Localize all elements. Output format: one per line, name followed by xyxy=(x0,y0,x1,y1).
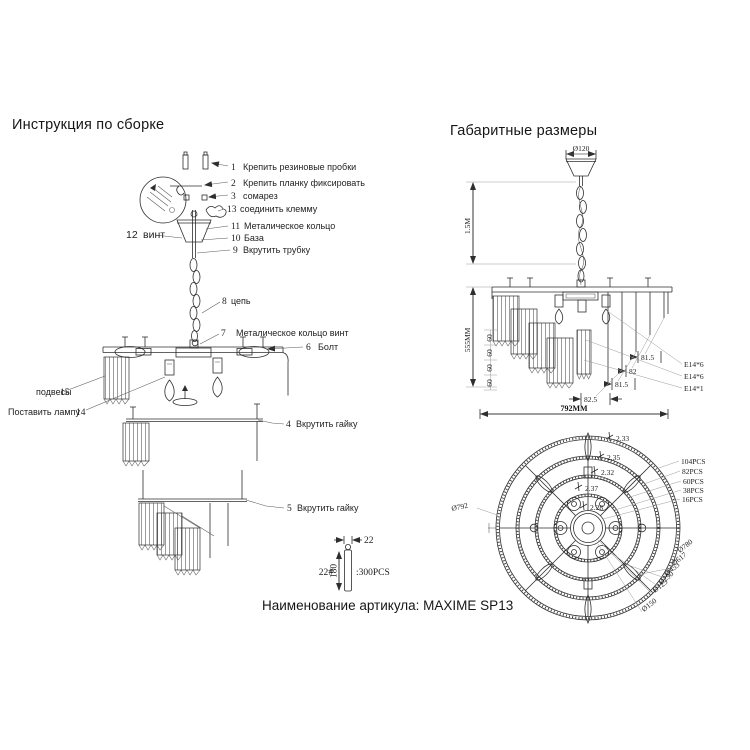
hanging-ring-icon xyxy=(192,340,198,346)
callout-label: Вкрутить гайку xyxy=(296,419,358,429)
lamp-icon xyxy=(165,360,174,401)
tier3-frame-icon xyxy=(138,470,247,575)
gap-label: 2.37 xyxy=(585,484,598,493)
chain-icon xyxy=(577,186,587,285)
fixture-width-label: 792MM xyxy=(560,404,588,413)
spacing-label: 60 xyxy=(485,379,494,387)
pcs-label: 38PCS xyxy=(683,486,704,495)
callout-label: Металическое кольцо винт xyxy=(236,328,349,338)
terminal-icon xyxy=(206,206,226,218)
side-view: Ø120 1.5M xyxy=(463,144,704,419)
drop-dim-label: 82.5 xyxy=(584,395,597,404)
lamp-icon xyxy=(602,295,610,324)
callout-label: Вкрутить гайку xyxy=(297,503,359,513)
screws-icon xyxy=(184,195,207,200)
assembly-diagram: 22 180 22# :300PCS 1 Крепить резиновые п… xyxy=(8,152,390,591)
callout-label: База xyxy=(244,233,264,243)
callout-label: цепь xyxy=(231,296,251,306)
crystal-strand-group xyxy=(104,357,129,404)
rubber-plugs-icon xyxy=(183,152,208,169)
pendant-qty-label: :300PCS xyxy=(356,568,390,578)
callout-label: Крепить резиновые пробки xyxy=(243,162,356,172)
pendant-code-label: 22# xyxy=(319,568,334,578)
spacing-label: 60 xyxy=(485,334,494,342)
lamp-icon xyxy=(555,295,563,324)
canopy-icon xyxy=(177,210,211,258)
callout-num: 2 xyxy=(231,179,236,189)
callout-num: 10 xyxy=(231,234,241,244)
callout-label: Болт xyxy=(318,342,338,352)
outer-dia-label: Ø792 xyxy=(451,501,469,513)
gap-label: 2.35 xyxy=(607,453,620,462)
pcs-label: 16PCS xyxy=(682,495,703,504)
socket-count-label: E14*1 xyxy=(684,384,704,393)
callout-num: 4 xyxy=(286,420,291,430)
callout-num: 11 xyxy=(231,222,240,232)
bottom-view: 2.33 2.35 2.32 2.37 2.28 Ø792 104PCS 82P… xyxy=(451,432,706,623)
ring-dia-label: Ø780 xyxy=(676,537,695,555)
callout-num: 5 xyxy=(287,504,292,514)
canopy-dia-label: Ø120 xyxy=(573,144,590,153)
callout-label: Поставить лампу xyxy=(8,407,80,417)
callout-label: винт xyxy=(143,229,165,241)
pendant-detail xyxy=(334,536,362,591)
callout-label: Вкрутить трубку xyxy=(243,245,311,255)
spacing-label: 60 xyxy=(485,349,494,357)
drop-dim-label: 81.5 xyxy=(641,353,654,362)
callout-num: 14 xyxy=(76,408,86,418)
chain-length-label: 1.5M xyxy=(463,218,472,234)
pcs-label: 82PCS xyxy=(682,467,703,476)
callout-label: Крепить планку фиксировать xyxy=(243,178,365,188)
socket-count-label: E14*6 xyxy=(684,360,704,369)
gap-label: 2.32 xyxy=(601,468,614,477)
technical-drawing: 22 180 22# :300PCS 1 Крепить резиновые п… xyxy=(0,0,750,750)
crystal-tier-group xyxy=(493,296,591,388)
mounting-bar-icon xyxy=(170,186,202,195)
drawing-sheet: Инструкция по сборке Габаритные размеры … xyxy=(0,0,750,750)
spacing-label: 60 xyxy=(485,364,494,372)
pcs-label: 60PCS xyxy=(683,477,704,486)
callout-num: 12 xyxy=(126,229,138,241)
ring-dia-label: Ø150 xyxy=(640,596,659,614)
gap-label: 2.28 xyxy=(590,503,603,512)
chain-icon xyxy=(190,259,200,342)
socket-count-label: E14*6 xyxy=(684,372,704,381)
callout-num: 6 xyxy=(306,343,311,353)
drop-dim-label: 81.5 xyxy=(615,380,628,389)
callout-num: 7 xyxy=(221,329,226,339)
pcs-label: 104PCS xyxy=(681,457,706,466)
callout-label: Металическое кольцо xyxy=(244,221,335,231)
pendant-width-label: 22 xyxy=(364,536,374,546)
wiring-detail-circle xyxy=(140,177,186,223)
callout-num: 15 xyxy=(60,388,70,398)
lamp-icon xyxy=(578,300,586,312)
screw-direction-icon xyxy=(173,385,197,406)
callout-num: 8 xyxy=(222,297,227,307)
tier2-frame-icon xyxy=(123,404,263,466)
lamp-icon xyxy=(213,358,222,397)
callout-label: соединить клемму xyxy=(240,204,318,214)
callout-num: 1 xyxy=(231,163,236,173)
callout-num: 9 xyxy=(233,246,238,256)
callout-num: 3 xyxy=(231,192,236,202)
gap-label: 2.33 xyxy=(616,434,629,443)
callout-num: 13 xyxy=(227,205,237,215)
callout-label: сомарез xyxy=(243,191,278,201)
fixture-height-label: 555MM xyxy=(463,327,472,352)
